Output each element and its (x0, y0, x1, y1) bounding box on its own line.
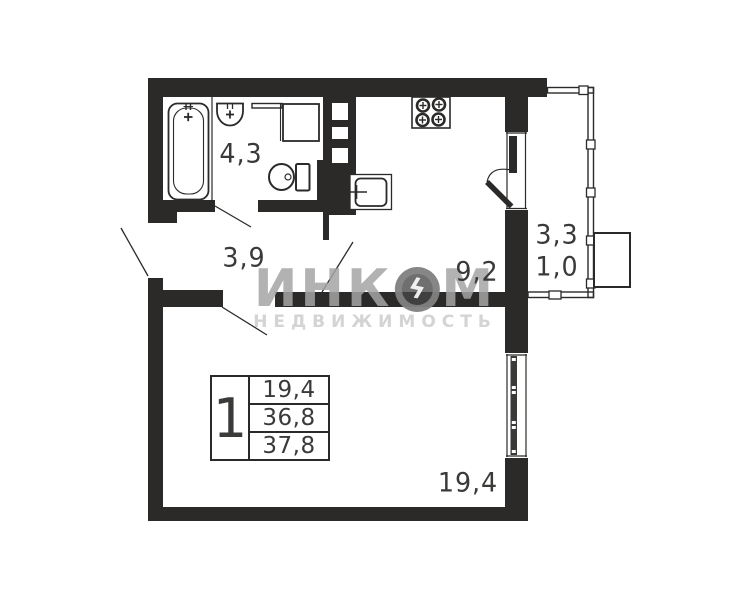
bath-bottom-wall-left (148, 200, 215, 212)
room-window (506, 354, 527, 457)
info-table-area-without-balcony: 36,8 (250, 405, 328, 433)
kitchen-wall-stub (323, 215, 329, 240)
right-wall-mid (505, 210, 528, 353)
balcony-divider-top (505, 97, 528, 132)
vent-fill-3 (332, 139, 348, 148)
kitchen-area-label: 9,2 (455, 257, 498, 288)
hallway-area-label: 3,9 (222, 243, 265, 274)
info-table-total-area: 37,8 (250, 433, 328, 459)
watermark-logo-icon: ϟ (394, 267, 439, 312)
bathroom-door-swing (215, 206, 251, 227)
info-table: 1 19,4 36,8 37,8 (210, 375, 330, 461)
vent-fill-4 (332, 163, 348, 215)
bathroom-area-label: 4,3 (219, 139, 262, 170)
info-table-living-area: 19,4 (250, 377, 328, 405)
hall-room-wall (148, 290, 223, 307)
shelf (252, 104, 282, 109)
toilet-flush (285, 174, 291, 180)
watermark-brand-part1: ИНК (254, 259, 393, 319)
balcony-window-sash (509, 136, 517, 173)
balcony-door (487, 132, 527, 209)
vent-fill-1 (332, 95, 348, 103)
vent-fill-2 (332, 120, 348, 127)
balcony-area-label: 3,3 (535, 220, 578, 251)
left-wall-lower (148, 278, 163, 521)
washing-machine (283, 104, 319, 141)
window-sash (511, 356, 518, 455)
ac-unit-box (594, 233, 630, 287)
kitchen-fixtures (347, 97, 450, 210)
watermark-subtitle: НЕДВИЖИМОСТЬ (253, 312, 497, 332)
living-room-area-label: 19,4 (438, 468, 498, 499)
info-table-areas: 19,4 36,8 37,8 (250, 377, 328, 459)
balcony-door-leaf (487, 182, 512, 207)
entrance-step (148, 212, 177, 223)
info-table-rooms-count: 1 (212, 377, 250, 459)
floor-plan: ИНК ϟ М НЕДВИЖИМОСТЬ 4,3 3,9 9,2 3,3 1,0… (0, 0, 750, 600)
balcony-reduced-area-label: 1,0 (535, 252, 578, 283)
toilet-tank (296, 164, 310, 191)
entrance-door-swing (121, 228, 148, 276)
lightning-bolt-icon: ϟ (405, 272, 429, 306)
vent-left-rail (323, 95, 332, 215)
right-wall-low (505, 458, 528, 521)
top-wall (148, 78, 547, 97)
bottom-wall (148, 507, 528, 521)
